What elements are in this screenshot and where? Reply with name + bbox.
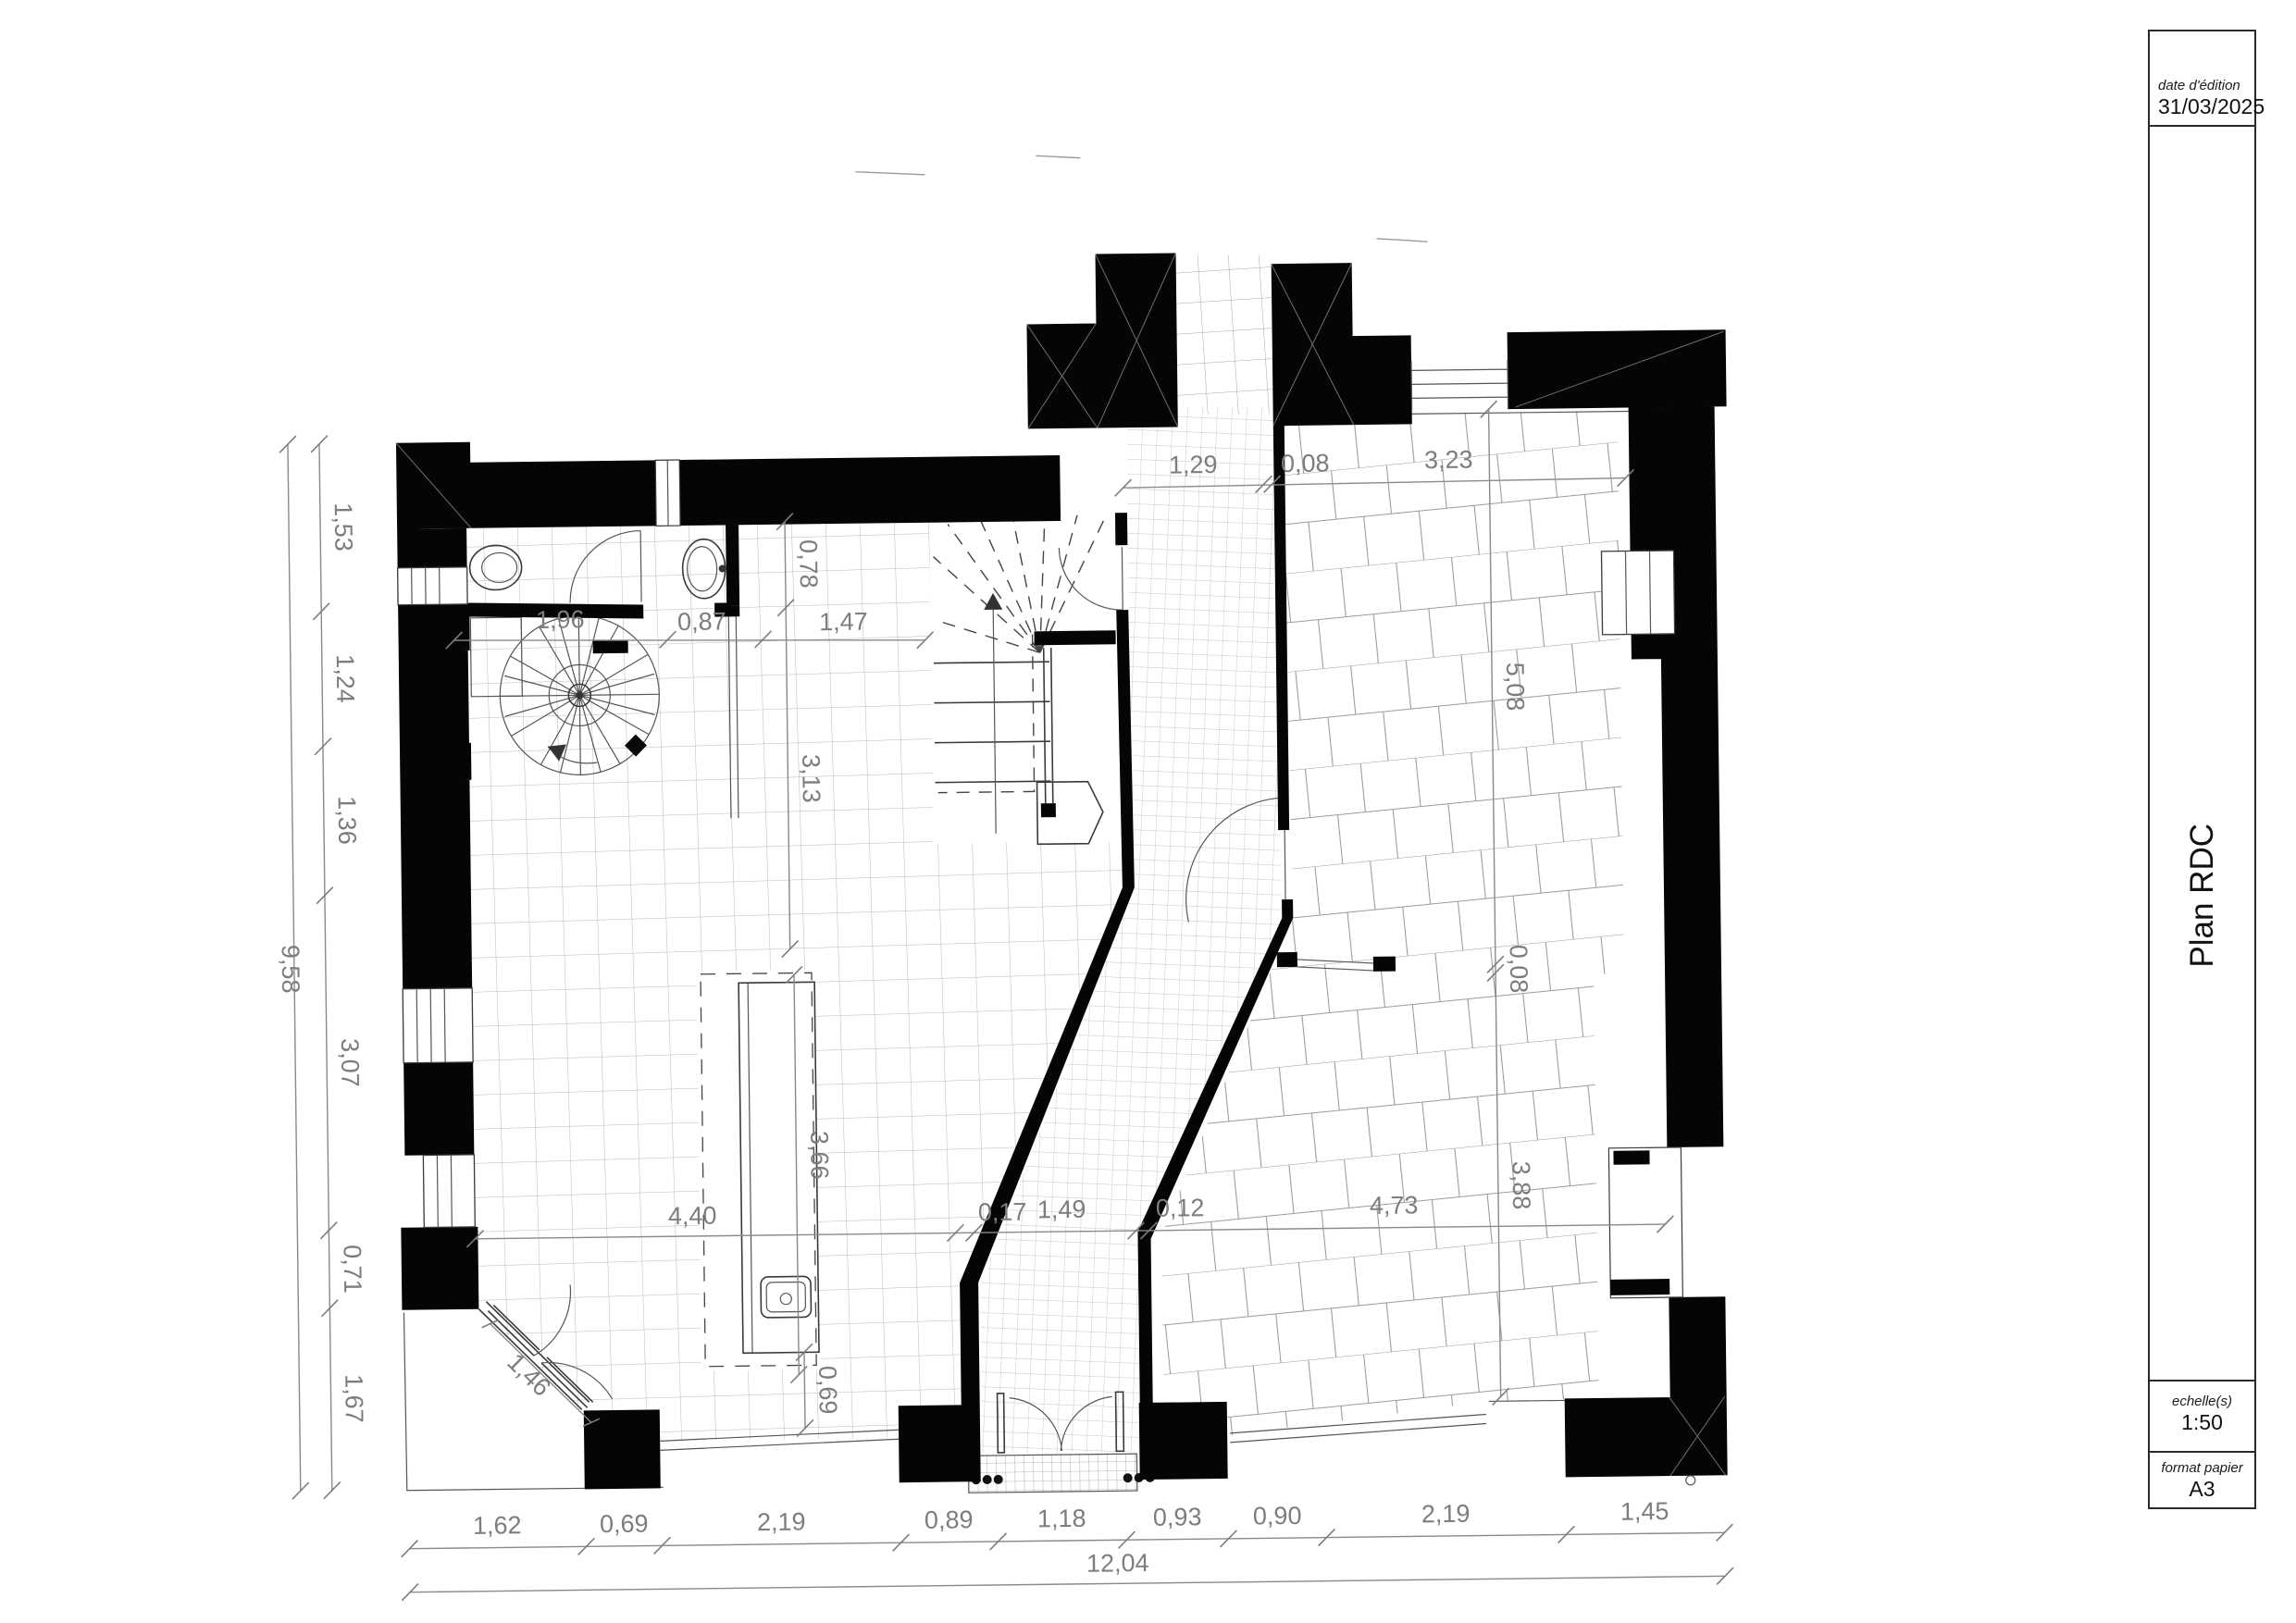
right-wall-niche-window [1601,551,1674,635]
dim-label: 3,23 [1424,446,1473,475]
drawing-title-section: Plan RDC [2150,127,2254,1381]
dim-label: 0,93 [1153,1503,1202,1531]
left-dimension-chain: 1,53 1,24 1,36 3,07 0,71 1,67 [311,435,369,1499]
paper-format-section: format papier A3 [2150,1453,2254,1505]
left-total-dimension: 9,58 [270,436,311,1499]
dim-label: 1,47 [819,608,868,637]
boundary-marker-icon [1686,1476,1695,1485]
left-window-2 [403,988,473,1063]
dim-label: 1,62 [473,1511,522,1540]
dim-label: 9,58 [277,945,305,994]
guide-marks [855,151,1427,249]
dim-label: 3,13 [797,754,825,803]
rear-passage-tiles [1176,254,1273,415]
bottom-total-dimension: 12,04 [402,1542,1733,1601]
dim-label: 5,08 [1501,663,1530,712]
dim-label: 0,17 [978,1198,1027,1227]
dim-label: 2,19 [757,1507,806,1536]
right-top-window [1411,360,1508,410]
dim-label: 1,53 [329,502,358,551]
dim-label: 0,71 [339,1245,367,1294]
dim-label: 1,45 [1620,1497,1669,1526]
dim-label: 1,36 [333,796,362,845]
dim-label: 0,08 [1281,449,1330,477]
dim-label: 3,07 [336,1038,365,1087]
paper-format-value: A3 [2150,1476,2254,1503]
edition-date-value: 31/03/2025 [2158,93,2254,120]
left-window-1 [398,567,467,605]
dim-label: 1,49 [1037,1196,1086,1224]
left-window-3 [423,1155,475,1228]
stair-landing-blank [929,517,1121,843]
dim-label: 0,69 [813,1366,842,1415]
dim-label: 0,69 [600,1510,649,1539]
dim-label: 0,78 [794,539,823,588]
paper-format-label: format papier [2150,1460,2254,1476]
dim-label: 1,24 [331,654,360,703]
floor-tiles [464,251,1631,1460]
dim-label: 0,87 [677,607,726,636]
title-block: date d'édition 31/03/2025 Plan RDC echel… [2148,30,2256,1509]
right-wall-niche [1608,1147,1682,1298]
dim-label: 0,90 [1253,1502,1302,1530]
bottom-dimension-chain: 1,62 0,69 2,19 0,89 1,18 0,93 0,90 2,19 … [401,1496,1732,1557]
dim-label: 0,89 [925,1505,974,1534]
dim-label: 4,73 [1370,1191,1419,1220]
drawing-title: Plan RDC [2184,824,2221,968]
top-window [655,460,680,526]
dim-label: 12,04 [1086,1549,1149,1578]
dim-label: 3,66 [805,1131,834,1180]
dim-label: 1,67 [340,1374,368,1423]
dim-label: 0,08 [1505,945,1533,994]
edition-date-label: date d'édition [2158,78,2254,93]
dim-label: 1,96 [536,605,585,634]
entrance-mat [968,1454,1154,1493]
dim-label: 0,12 [1156,1194,1205,1222]
floor-plan-canvas: 1,62 0,69 2,19 0,89 1,18 0,93 0,90 2,19 … [0,0,2296,1623]
dim-label: 1,18 [1037,1505,1086,1533]
scale-value: 1:50 [2150,1409,2254,1436]
dim-label: 1,29 [1169,451,1218,479]
dim-label: 4,40 [668,1202,717,1231]
scale-label: echelle(s) [2150,1394,2254,1409]
scale-section: echelle(s) 1:50 [2150,1381,2254,1453]
edition-date-section: date d'édition 31/03/2025 [2150,31,2254,127]
dim-label: 2,19 [1421,1500,1471,1529]
dim-label: 3,88 [1508,1161,1536,1210]
